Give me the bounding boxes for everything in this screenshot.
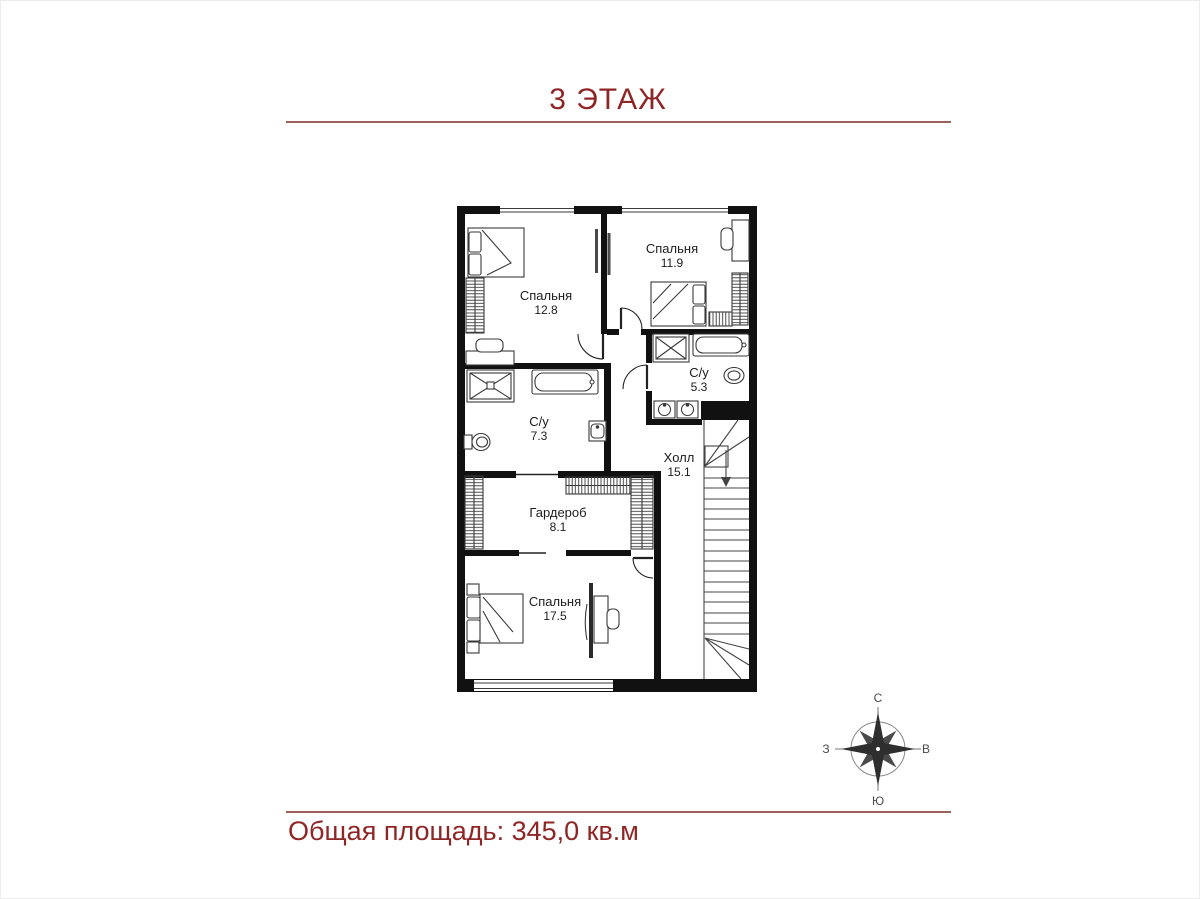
stair-winder-bottom [705, 638, 749, 679]
chair-icon [721, 228, 733, 250]
window-top-right [622, 206, 728, 214]
room-area: 15.1 [664, 465, 695, 479]
radiator-icon [709, 312, 732, 326]
compass-north-label: С [874, 691, 883, 705]
staircase [704, 420, 749, 679]
room-label-hall: Холл 15.1 [664, 451, 695, 479]
pillow-icon [467, 597, 480, 618]
room-label-wardrobe: Гардероб 8.1 [529, 506, 586, 534]
room-label-bedroom-12-8: Спальня 12.8 [520, 289, 572, 317]
door-bedroom-12-8 [578, 334, 603, 359]
compass-east-label: В [922, 742, 930, 756]
sliding-panel [608, 233, 611, 275]
door-bathroom-5-3 [623, 365, 647, 389]
room-area: 11.9 [646, 256, 698, 270]
desk-icon [466, 351, 514, 365]
pillow-icon [469, 254, 481, 275]
tv-wall-icon [589, 583, 593, 658]
chair-icon [476, 339, 503, 352]
room-area: 17.5 [529, 609, 581, 623]
compass-west-label: З [822, 742, 829, 756]
stair-winder-top [705, 420, 749, 466]
desk-icon [594, 596, 608, 643]
room-label-bedroom-17-5: Спальня 17.5 [529, 595, 581, 623]
room-area: 12.8 [520, 303, 572, 317]
room-name: Спальня [520, 289, 572, 303]
room-label-bathroom-7-3: С/у 7.3 [529, 415, 549, 443]
room-name: С/у [529, 415, 549, 429]
door-bedroom-11-9 [621, 308, 642, 329]
shower-drain [487, 382, 494, 389]
window-top-left [500, 206, 574, 214]
compass-south-label: Ю [872, 794, 884, 808]
desk-icon [732, 220, 749, 261]
tv-screen [585, 604, 587, 640]
bedroom-11-9-furniture [608, 220, 750, 326]
room-label-bedroom-11-9: Спальня 11.9 [646, 242, 698, 270]
pillow-icon [469, 232, 481, 252]
toilet-tank [464, 435, 472, 449]
pillow-icon [693, 306, 705, 324]
room-name: С/у [689, 366, 709, 380]
room-name: Гардероб [529, 506, 586, 520]
room-name: Спальня [529, 595, 581, 609]
room-area: 5.3 [689, 380, 709, 394]
nightstand-icon [467, 642, 479, 653]
floor-plan-page: 3 ЭТАЖ Общая площадь: 345,0 кв.м [0, 0, 1200, 899]
pillow-icon [693, 285, 705, 304]
room-area: 7.3 [529, 429, 549, 443]
room-label-bathroom-5-3: С/у 5.3 [689, 366, 709, 394]
sliding-panel [595, 229, 598, 273]
pillow-icon [467, 620, 480, 641]
room-name: Спальня [646, 242, 698, 256]
room-name: Холл [664, 451, 695, 465]
floor-plan-drawing [1, 1, 1200, 899]
window-bottom [474, 680, 613, 691]
door-bedroom-17-5 [633, 558, 653, 578]
room-area: 8.1 [529, 520, 586, 534]
toilet-icon [724, 368, 744, 384]
nightstand-icon [467, 584, 479, 595]
compass-rose-icon [835, 707, 921, 791]
chair-icon [607, 609, 619, 629]
